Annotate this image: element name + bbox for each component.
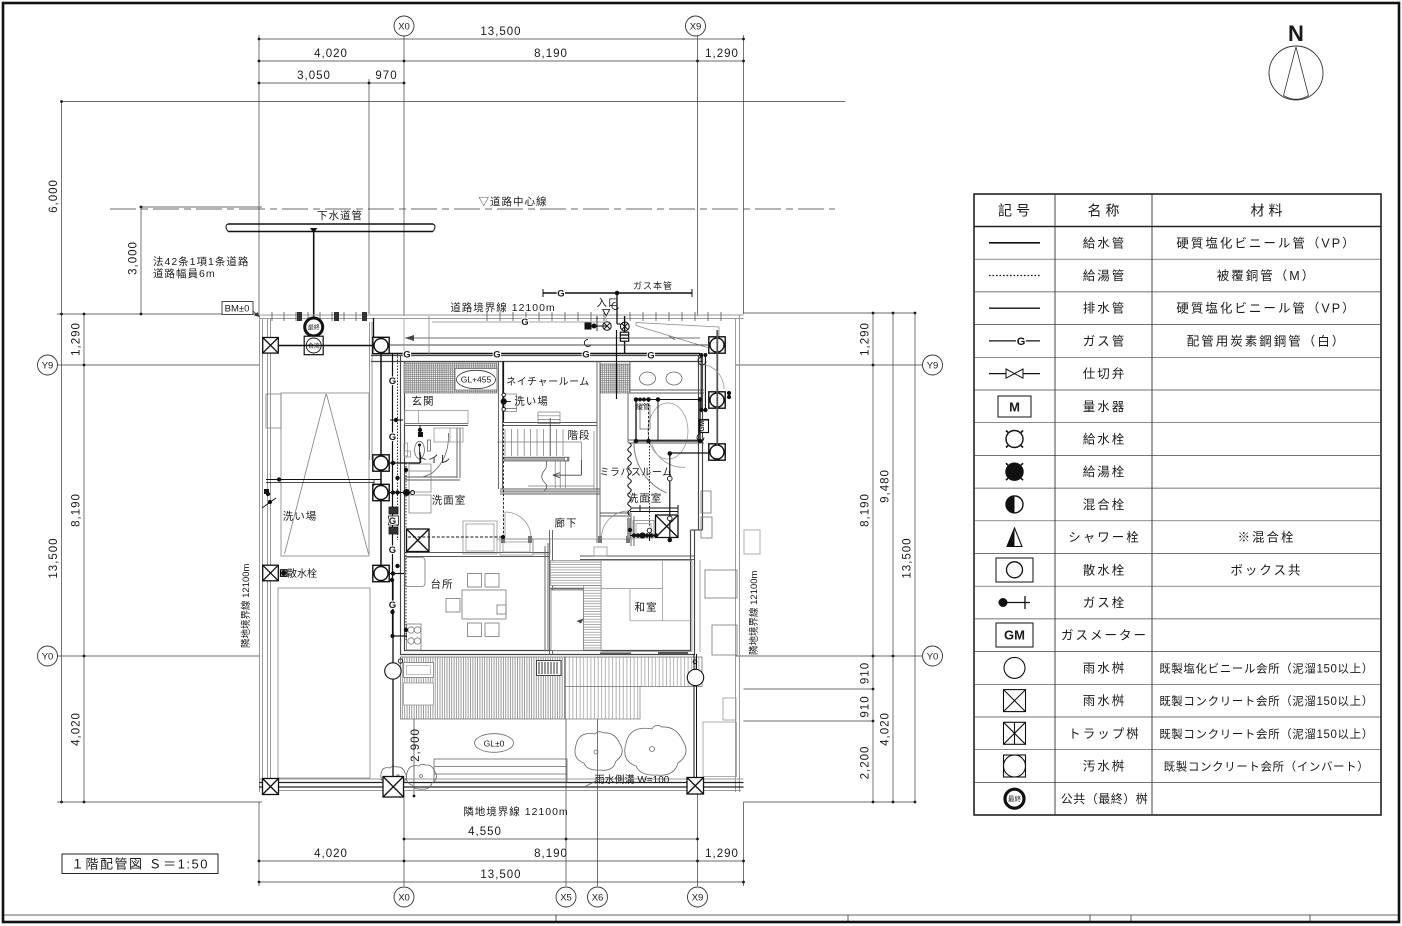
- svg-text:公共（最終）桝: 公共（最終）桝: [1061, 791, 1149, 806]
- svg-text:13,500: 13,500: [902, 537, 914, 578]
- svg-text:混合栓: 混合栓: [1083, 497, 1127, 512]
- svg-text:廊下: 廊下: [555, 517, 578, 530]
- svg-text:階段: 階段: [568, 429, 591, 442]
- svg-text:G: G: [389, 545, 396, 556]
- svg-text:8,190: 8,190: [71, 493, 83, 527]
- svg-text:X9: X9: [690, 22, 702, 33]
- svg-text:3,050: 3,050: [297, 70, 331, 82]
- svg-text:BM±0: BM±0: [225, 304, 250, 315]
- svg-text:X9: X9: [692, 893, 704, 904]
- svg-text:既製コンクリート会所（泥溜150以上）: 既製コンクリート会所（泥溜150以上）: [1159, 727, 1374, 741]
- svg-text:X5: X5: [560, 893, 572, 904]
- svg-text:ガス管: ガス管: [1083, 333, 1127, 348]
- svg-text:Y0: Y0: [42, 652, 54, 663]
- svg-text:ガス栓: ガス栓: [1083, 595, 1127, 610]
- svg-text:970: 970: [375, 70, 397, 82]
- svg-text:ミラバスルーム: ミラバスルーム: [599, 467, 672, 479]
- svg-text:ボックス共: ボックス共: [1230, 563, 1302, 577]
- svg-text:G: G: [389, 516, 396, 527]
- svg-text:最終: 最終: [308, 324, 320, 332]
- svg-text:硬質塩化ビニール管（VP）: 硬質塩化ビニール管（VP）: [1176, 301, 1356, 316]
- svg-text:汚水桝: 汚水桝: [1083, 759, 1127, 774]
- svg-text:8,190: 8,190: [860, 493, 872, 527]
- svg-text:洗面室: 洗面室: [432, 494, 467, 507]
- svg-text:G: G: [1017, 336, 1026, 348]
- svg-text:X0: X0: [398, 22, 410, 33]
- svg-text:雨水側溝 W=100: 雨水側溝 W=100: [595, 773, 670, 786]
- svg-text:既製コンクリート会所（インバート）: 既製コンクリート会所（インバート）: [1164, 760, 1370, 774]
- svg-text:13,500: 13,500: [48, 537, 60, 578]
- svg-text:仕切弁: 仕切弁: [1083, 366, 1127, 381]
- svg-text:G: G: [493, 350, 500, 361]
- svg-text:1,290: 1,290: [705, 48, 739, 60]
- svg-text:8,190: 8,190: [534, 48, 568, 60]
- svg-text:隣地境界線 12100m: 隣地境界線 12100m: [240, 563, 252, 648]
- svg-text:G: G: [647, 351, 654, 362]
- svg-text:道路幅員6m: 道路幅員6m: [153, 267, 216, 280]
- svg-text:910: 910: [860, 695, 872, 717]
- svg-text:G: G: [389, 376, 396, 387]
- svg-text:Y9: Y9: [927, 361, 939, 372]
- svg-text:記号: 記号: [998, 203, 1034, 219]
- svg-text:給湯管: 給湯管: [1083, 268, 1127, 283]
- svg-text:１階配管図 Ｓ＝1:50: １階配管図 Ｓ＝1:50: [71, 857, 209, 872]
- svg-text:1,290: 1,290: [705, 848, 739, 860]
- svg-text:8,190: 8,190: [534, 848, 568, 860]
- svg-text:G: G: [521, 317, 528, 328]
- svg-text:最終: 最終: [1008, 794, 1022, 803]
- svg-text:N: N: [1288, 21, 1304, 46]
- svg-text:Y0: Y0: [927, 652, 939, 663]
- svg-text:6,000: 6,000: [48, 179, 60, 213]
- svg-text:法42条1項1条道路: 法42条1項1条道路: [153, 255, 249, 268]
- svg-text:4,020: 4,020: [71, 712, 83, 746]
- svg-text:G: G: [389, 600, 396, 611]
- svg-text:1,290: 1,290: [860, 322, 872, 356]
- svg-text:給水管: 給水管: [1083, 235, 1127, 250]
- svg-text:被覆銅管（M）: 被覆銅管（M）: [1217, 268, 1316, 283]
- svg-text:道路境界線 12100m: 道路境界線 12100m: [450, 301, 555, 314]
- svg-text:Y9: Y9: [42, 361, 54, 372]
- svg-text:硬質塩化ビニール管（VP）: 硬質塩化ビニール管（VP）: [1176, 235, 1356, 250]
- svg-text:G: G: [403, 350, 410, 361]
- svg-text:和室: 和室: [635, 601, 658, 614]
- svg-text:4,020: 4,020: [880, 712, 892, 746]
- svg-text:既製コンクリート会所（泥溜150以上）: 既製コンクリート会所（泥溜150以上）: [1159, 694, 1374, 708]
- svg-text:GL+455: GL+455: [461, 375, 492, 385]
- svg-text:2,200: 2,200: [860, 746, 872, 780]
- svg-text:玄関: 玄関: [412, 395, 435, 408]
- svg-text:▽道路中心線: ▽道路中心線: [479, 195, 548, 208]
- svg-text:2,900: 2,900: [410, 728, 422, 762]
- svg-text:下水道管: 下水道管: [317, 209, 363, 222]
- svg-text:シャワー栓: シャワー栓: [1068, 530, 1141, 545]
- svg-text:給水栓: 給水栓: [1083, 432, 1127, 447]
- svg-text:排水管: 排水管: [1083, 301, 1127, 316]
- svg-text:1,290: 1,290: [71, 322, 83, 356]
- svg-text:GM: GM: [1004, 628, 1025, 643]
- svg-text:縦管: 縦管: [636, 402, 650, 411]
- svg-text:X0: X0: [398, 893, 410, 904]
- svg-text:G: G: [557, 289, 564, 300]
- svg-text:4,550: 4,550: [468, 826, 502, 838]
- svg-text:散水栓: 散水栓: [287, 567, 317, 580]
- svg-text:4,020: 4,020: [314, 48, 348, 60]
- svg-text:3,000: 3,000: [128, 241, 140, 275]
- svg-text:隣地境界線 12100m: 隣地境界線 12100m: [748, 570, 760, 655]
- svg-text:ガス本管: ガス本管: [633, 280, 673, 291]
- svg-text:X6: X6: [592, 893, 604, 904]
- svg-text:ネイチャールーム: ネイチャールーム: [506, 376, 590, 388]
- svg-text:洗い場: 洗い場: [514, 395, 549, 408]
- svg-text:隣地境界線 12100m: 隣地境界線 12100m: [463, 805, 568, 818]
- svg-text:雨水桝: 雨水桝: [1083, 693, 1127, 708]
- svg-text:洗面室: 洗面室: [628, 492, 663, 505]
- svg-text:※混合栓: ※混合栓: [1237, 530, 1295, 545]
- svg-text:洗い場: 洗い場: [283, 510, 318, 523]
- svg-text:散水栓: 散水栓: [1083, 562, 1127, 577]
- svg-text:トイレ: トイレ: [417, 454, 452, 466]
- svg-text:910: 910: [860, 662, 872, 684]
- svg-text:9,480: 9,480: [880, 469, 892, 503]
- svg-text:給湯栓: 給湯栓: [1083, 464, 1127, 479]
- svg-text:材料: 材料: [1251, 203, 1287, 219]
- svg-text:名称: 名称: [1088, 203, 1124, 219]
- svg-text:G: G: [389, 432, 396, 443]
- svg-text:M: M: [1009, 399, 1020, 414]
- svg-text:トラップ桝: トラップ桝: [1068, 726, 1141, 741]
- svg-text:量水器: 量水器: [1083, 400, 1127, 414]
- svg-text:台所: 台所: [431, 578, 454, 591]
- svg-text:入口: 入口: [597, 297, 620, 309]
- svg-text:配管用炭素鋼鋼管（白）: 配管用炭素鋼鋼管（白）: [1187, 333, 1347, 348]
- svg-text:G: G: [582, 350, 589, 361]
- svg-text:GL±0: GL±0: [484, 739, 505, 749]
- svg-text:4,020: 4,020: [314, 848, 348, 860]
- svg-text:雨水桝: 雨水桝: [1083, 660, 1127, 675]
- svg-text:既製塩化ビニール会所（泥溜150以上）: 既製塩化ビニール会所（泥溜150以上）: [1159, 661, 1374, 675]
- svg-text:13,500: 13,500: [480, 869, 521, 881]
- svg-text:ガスメーター: ガスメーター: [1061, 629, 1148, 643]
- svg-text:13,500: 13,500: [480, 26, 521, 38]
